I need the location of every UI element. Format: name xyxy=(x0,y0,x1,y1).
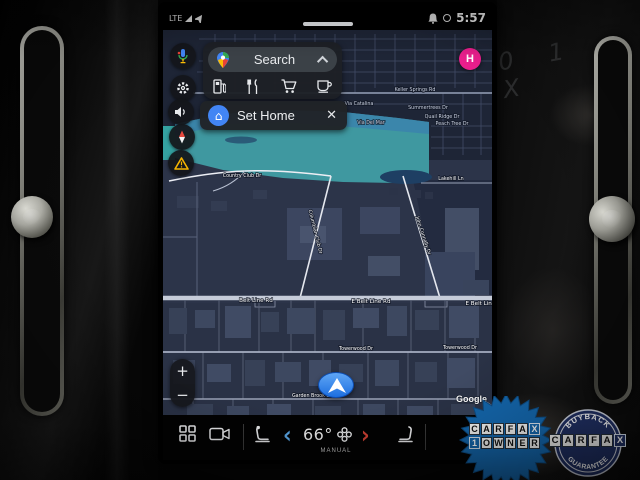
report-hazard-button[interactable] xyxy=(168,150,194,176)
letter-tile: C xyxy=(549,434,561,447)
navigation-arrow-icon xyxy=(319,373,355,399)
search-panel: Search xyxy=(203,42,342,99)
infotainment-screen: LTE 5:57 xyxy=(158,2,497,464)
voice-assistant-button[interactable] xyxy=(170,43,196,69)
letter-tile: C xyxy=(469,423,480,435)
gas-station-icon[interactable] xyxy=(213,79,226,94)
status-bar: LTE 5:57 xyxy=(163,6,492,32)
street-label-belt-line-3: E Belt Line Rd xyxy=(466,301,493,307)
letter-tile: A xyxy=(562,434,574,447)
signal-icon xyxy=(185,15,192,22)
letter-tile: A xyxy=(481,423,492,435)
set-home-banner[interactable]: ⌂ Set Home ✕ xyxy=(200,101,347,130)
letter-tile: W xyxy=(493,437,504,449)
camera-icon xyxy=(209,427,231,441)
do-not-disturb-icon xyxy=(443,14,451,22)
letter-tile: R xyxy=(493,423,504,435)
shopping-cart-icon[interactable] xyxy=(281,79,297,94)
coffee-icon[interactable] xyxy=(317,79,332,93)
gear-icon xyxy=(176,81,190,95)
street-label-lakehill: Lakehill Ln xyxy=(438,176,463,182)
letter-tile: F xyxy=(588,434,600,447)
google-maps-pin-icon xyxy=(217,52,229,68)
vent-knob-left[interactable] xyxy=(11,196,53,238)
street-label-via-del-mar: Via Del Mar xyxy=(357,120,385,126)
letter-tile: N xyxy=(505,437,516,449)
street-label-towerwood-1: Towerwood Dr xyxy=(338,346,373,352)
street-label-peach-tree: Peach Tree Dr xyxy=(436,121,469,127)
search-label: Search xyxy=(235,52,314,67)
street-label-summertrees: Summertrees Dr xyxy=(408,105,448,111)
speaker-icon xyxy=(174,106,188,118)
restaurants-icon[interactable] xyxy=(246,79,260,94)
letter-tile: A xyxy=(601,434,613,447)
street-label-belt-line-2: E Belt Line Rd xyxy=(352,299,391,305)
temp-decrease-button[interactable]: ‹ xyxy=(283,421,292,449)
divider xyxy=(243,424,244,450)
carfax-buyback-word-tiles: CARFAX xyxy=(549,434,626,447)
seat-right-icon xyxy=(395,425,415,443)
status-handle xyxy=(303,22,353,26)
street-label-towerwood-2: Towerwood Dr xyxy=(442,345,477,351)
passenger-seat-climate-button[interactable] xyxy=(395,425,415,443)
street-label-quail-ridge: Quail Ridge Dr xyxy=(425,114,460,120)
letter-tile: X xyxy=(614,434,626,447)
letter-tile: O xyxy=(481,437,492,449)
close-icon[interactable]: ✕ xyxy=(326,108,339,123)
settings-button[interactable] xyxy=(170,75,196,101)
app-grid-icon xyxy=(179,425,196,442)
zoom-controls: + − xyxy=(170,359,195,407)
sound-button[interactable] xyxy=(168,99,194,125)
zoom-out-button[interactable]: − xyxy=(176,386,189,404)
app-grid-button[interactable] xyxy=(179,425,196,442)
network-label: LTE xyxy=(169,14,182,23)
letter-tile: 1 xyxy=(469,437,480,449)
warning-triangle-icon xyxy=(174,157,189,170)
fan-icon xyxy=(337,427,352,442)
home-map-marker[interactable]: H xyxy=(459,48,481,70)
dashboard: 0 1 X LTE 5:57 xyxy=(0,0,640,480)
street-label-belt-line-1: Belt Line Rd xyxy=(239,298,273,304)
vehicle-position-marker xyxy=(318,372,354,398)
climate-mode-label: MANUAL xyxy=(301,448,371,454)
compass-icon xyxy=(176,130,188,144)
one-owner-word-tiles: 1OWNER xyxy=(469,437,540,449)
location-arrow-icon xyxy=(195,14,204,23)
letter-tile: A xyxy=(517,423,528,435)
driver-seat-climate-button[interactable] xyxy=(253,425,273,443)
temperature-value[interactable]: 66° xyxy=(303,425,333,444)
map-view[interactable]: Keller Springs Rd Summertrees Dr Via Cat… xyxy=(163,30,492,415)
letter-tile: X xyxy=(529,423,540,435)
letter-tile: E xyxy=(517,437,528,449)
street-label-via-catalina: Via Catalina xyxy=(345,101,374,107)
letter-tile: F xyxy=(505,423,516,435)
search-bar[interactable]: Search xyxy=(208,47,337,72)
letter-tile: R xyxy=(575,434,587,447)
home-icon: ⌂ xyxy=(208,105,229,126)
fan-mode-button[interactable] xyxy=(337,427,352,442)
climate-bar: ‹ 66° MANUAL › xyxy=(163,415,492,460)
compass-button[interactable] xyxy=(169,124,195,150)
carfax-word-tiles: CARFAX xyxy=(469,423,540,435)
temp-increase-button[interactable]: › xyxy=(361,421,370,449)
divider xyxy=(425,424,426,450)
microphone-icon xyxy=(176,48,190,64)
zoom-in-button[interactable]: + xyxy=(176,362,189,380)
notification-bell-icon xyxy=(428,13,438,24)
set-home-label: Set Home xyxy=(237,108,318,123)
street-label-country-club: Country Club Dr xyxy=(223,173,262,179)
chevron-up-icon xyxy=(317,55,328,66)
seat-left-icon xyxy=(253,425,273,443)
camera-button[interactable] xyxy=(209,427,231,441)
street-label-keller-springs: Keller Springs Rd xyxy=(395,87,436,93)
letter-tile: R xyxy=(529,437,540,449)
clock: 5:57 xyxy=(456,11,486,25)
vent-knob-right[interactable] xyxy=(589,196,635,242)
